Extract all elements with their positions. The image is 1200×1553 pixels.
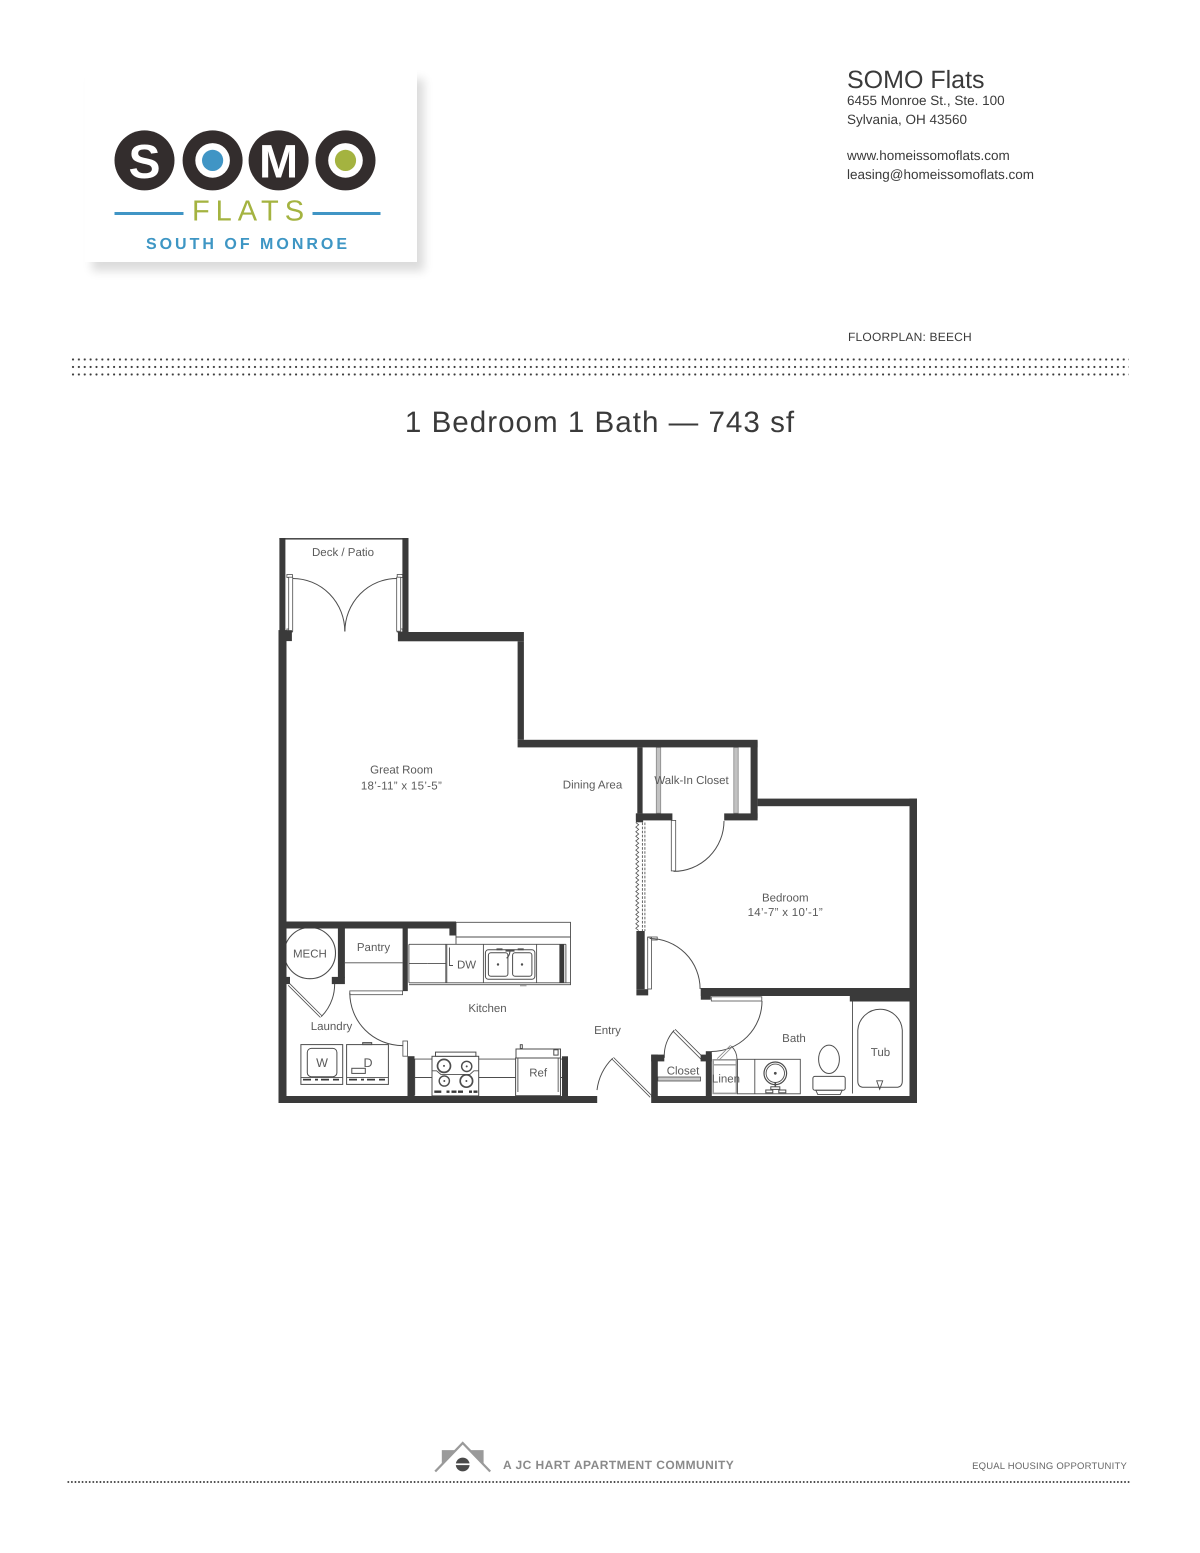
svg-text:MECH: MECH [293,948,327,960]
svg-text:W: W [316,1056,328,1070]
svg-text:Pantry: Pantry [357,942,390,954]
svg-text:Linen: Linen [712,1074,740,1086]
svg-text:Great Room: Great Room [370,765,433,777]
svg-text:Deck / Patio: Deck / Patio [312,547,374,559]
svg-text:DW: DW [457,960,476,972]
svg-text:Bedroom: Bedroom [762,892,809,904]
svg-text:Closet: Closet [667,1066,700,1078]
svg-text:Laundry: Laundry [311,1021,353,1033]
svg-text:18’-11” x 15’-5”: 18’-11” x 15’-5” [361,781,442,793]
svg-text:D: D [363,1056,372,1070]
svg-text:Bath: Bath [782,1033,806,1045]
svg-text:Dining Area: Dining Area [563,780,623,792]
svg-text:Kitchen: Kitchen [468,1003,506,1015]
svg-text:Ref: Ref [529,1068,548,1080]
svg-text:14’-7” x 10’-1”: 14’-7” x 10’-1” [748,907,823,919]
svg-text:Tub: Tub [871,1047,890,1059]
svg-text:Walk-In Closet: Walk-In Closet [654,775,729,787]
svg-text:Entry: Entry [594,1025,621,1037]
